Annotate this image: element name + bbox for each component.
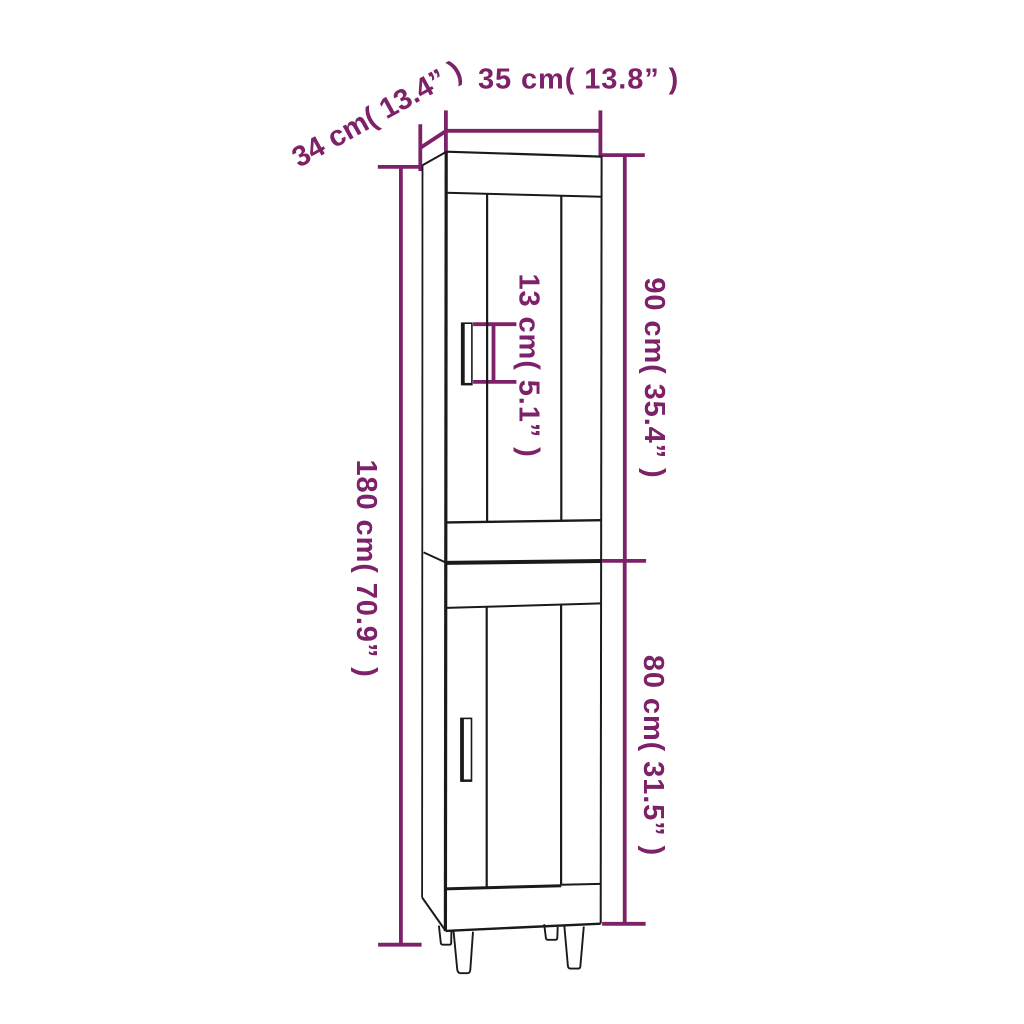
svg-text:35 cm( 13.8” ): 35 cm( 13.8” ) (478, 64, 679, 96)
svg-text:80 cm( 31.5” ): 80 cm( 31.5” ) (637, 655, 669, 856)
svg-text:180 cm( 70.9” ): 180 cm( 70.9” ) (350, 460, 382, 678)
svg-text:13 cm( 5.1” ): 13 cm( 5.1” ) (513, 274, 545, 458)
svg-text:90 cm( 35.4” ): 90 cm( 35.4” ) (638, 277, 670, 478)
